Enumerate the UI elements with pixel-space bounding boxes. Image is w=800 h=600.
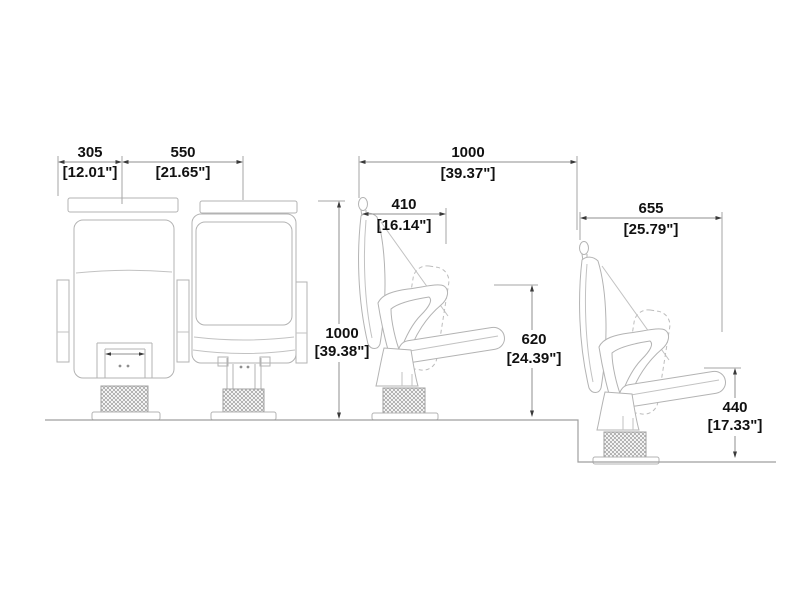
dim-folded-depth-value: 655 [638,200,663,217]
dim-left-width-inches: [12.01"] [63,164,118,181]
dim-armrest-height-value: 620 [521,331,546,348]
dim-open-seat-depth-value: 410 [391,196,416,213]
base-plate [92,412,160,420]
dim-folded-depth-inches: [25.79"] [624,221,679,238]
technical-drawing-page: 305 [12.01"] 550 [21.65"] 1000 [39.37"] … [0,0,800,600]
dim-seat-width-value: 550 [170,144,195,161]
side-view-right [580,242,728,465]
front-view [57,198,307,420]
dim-overall-height-inches: [39.38"] [315,343,370,360]
armrest-end-right [296,282,307,363]
backrest-top-rail [200,201,297,213]
dim-open-seat-depth-inches: [16.14"] [377,217,432,234]
knurled-base-cylinder [223,389,264,413]
floor-step-line [45,420,776,462]
seat-dimension-drawing: 305 [12.01"] 550 [21.65"] 1000 [39.37"] … [0,0,800,600]
dim-seat-width: 550 [21.65"] [122,144,243,200]
dim-seat-height-value: 440 [722,399,747,416]
backrest-body [192,214,296,363]
front-seat-open [192,201,307,420]
dim-left-width: 305 [12.01"] [58,144,122,204]
front-seat-folded [57,198,189,420]
dim-armrest-height: 620 [24.39"] [494,285,561,417]
dim-left-width-value: 305 [77,144,102,161]
base-plate [211,412,276,420]
knurled-base-cylinder [101,386,148,412]
armrest-end-left [57,280,69,362]
dim-armrest-height-inches: [24.39"] [507,350,562,367]
armrest-end-right [177,280,189,362]
dim-overall-depth-value: 1000 [451,144,484,161]
dim-seat-width-inches: [21.65"] [156,164,211,181]
dim-overall-height-value: 1000 [325,325,358,342]
dim-overall-depth-inches: [39.37"] [441,165,496,182]
dim-seat-height-inches: [17.33"] [708,417,763,434]
backrest-top-rail [68,198,178,212]
